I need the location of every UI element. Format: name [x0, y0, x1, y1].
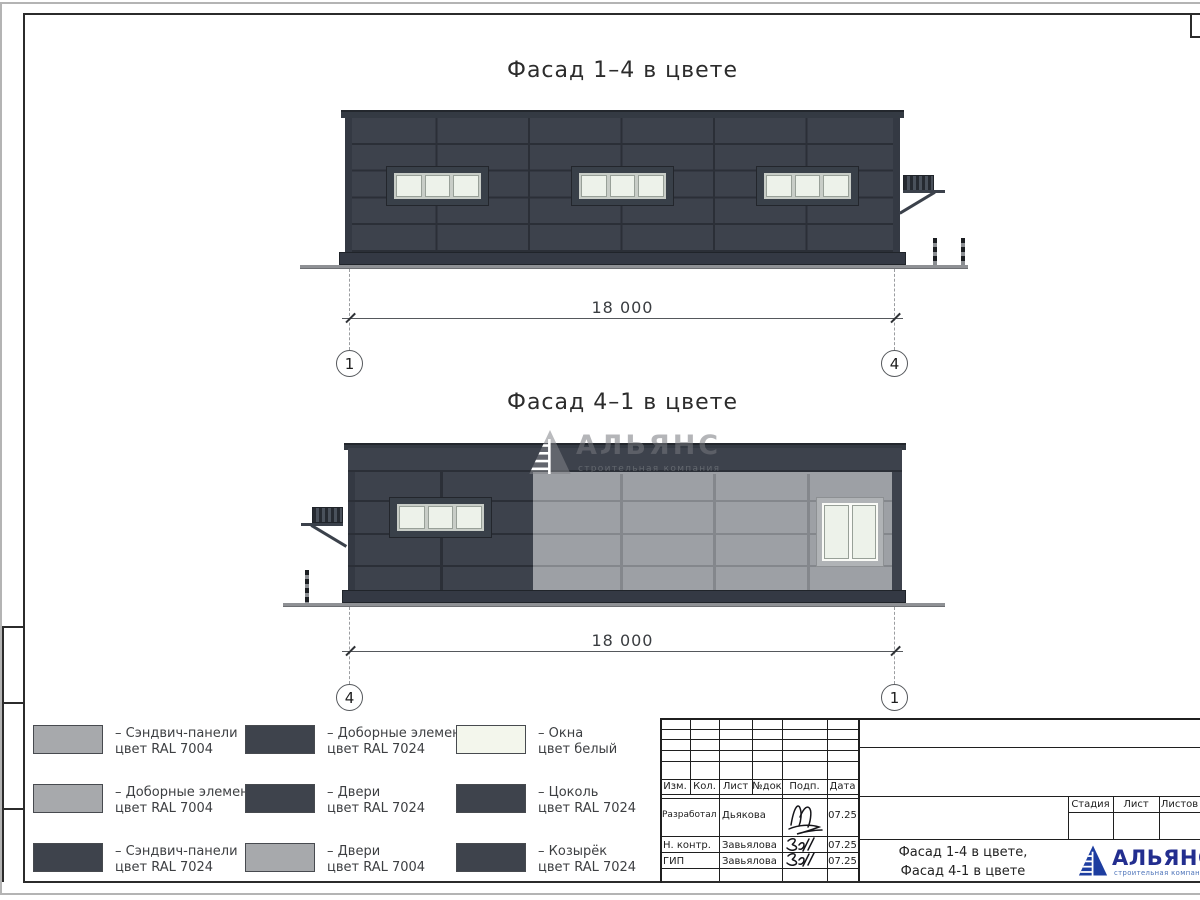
legend-label-line: – Окна — [538, 726, 617, 742]
facade2-window-right — [816, 497, 884, 567]
legend-label-line: – Цоколь — [538, 785, 636, 801]
col-header-kol: Кол. — [690, 781, 719, 792]
signature — [785, 852, 827, 867]
left-margin-stamp — [2, 702, 24, 704]
drawing-frame-top — [23, 13, 1200, 15]
window-pane — [456, 506, 482, 529]
facade1-ground-line — [300, 265, 968, 269]
watermark-logo — [528, 428, 572, 480]
legend-label: – Сэндвич-панели цвет RAL 7024 — [115, 844, 238, 876]
titleblock-border — [660, 718, 1200, 720]
panel-seam — [620, 474, 623, 590]
col-header-list: Лист — [719, 781, 752, 792]
axis-number: 4 — [890, 355, 900, 373]
company-logo-text: АЛЬЯНС — [1112, 846, 1200, 870]
legend-label-line: цвет RAL 7024 — [327, 801, 425, 817]
legend-swatch — [33, 725, 103, 754]
facade2-title: Фасад 4–1 в цвете — [345, 390, 900, 415]
facade2-plinth — [342, 590, 906, 603]
paper-top-edge — [0, 2, 1200, 4]
sign-date: 07.25 — [827, 856, 858, 867]
facade1-plinth — [339, 252, 906, 265]
legend-label: – Доборные элементы цвет RAL 7004 — [115, 785, 266, 817]
titleblock-border — [660, 718, 662, 883]
legend-label: – Цоколь цвет RAL 7024 — [538, 785, 636, 817]
facade1-canopy-strut — [899, 191, 935, 214]
facade2-corner-trim-left — [348, 472, 355, 590]
facade2-dimension-label: 18 000 — [350, 631, 895, 650]
axis-number: 1 — [890, 689, 900, 707]
titleblock-divider — [782, 718, 783, 881]
watermark-tagline: строительная компания — [578, 464, 720, 474]
signature — [785, 837, 827, 852]
signer-role: Н. контр. — [663, 840, 719, 851]
facade2-axis-bubble-left: 4 — [336, 684, 363, 711]
document-title-line: Фасад 1-4 в цвете, — [860, 843, 1066, 862]
legend-label-line: – Козырёк — [538, 844, 636, 860]
facade1-dimension-line — [342, 318, 903, 319]
facade1-window-1 — [386, 166, 489, 206]
panel-seam — [713, 474, 716, 590]
panel-seam — [807, 474, 810, 590]
stage-header: Стадия — [1068, 799, 1113, 810]
window-pane — [766, 175, 792, 197]
facade2-corner-trim-right — [892, 472, 902, 590]
facade1-parapet-coping — [341, 110, 904, 118]
facade2-canopy — [312, 507, 343, 523]
legend-label-line: цвет RAL 7024 — [115, 860, 238, 876]
legend-label-line: цвет RAL 7004 — [327, 860, 425, 876]
col-header-data: Дата — [827, 781, 858, 792]
facade2-window-left — [389, 497, 492, 538]
titleblock-divider — [858, 839, 1200, 840]
company-logo-pyramid-icon — [1078, 844, 1108, 877]
legend-swatch — [456, 725, 526, 754]
titleblock-divider — [858, 747, 1200, 748]
titleblock-divider — [1068, 812, 1200, 813]
drawing-frame-left — [23, 13, 25, 883]
legend-label-line: цвет RAL 7004 — [115, 742, 238, 758]
legend-label: – Двери цвет RAL 7024 — [327, 785, 425, 817]
legend-label-line: – Двери — [327, 844, 425, 860]
legend-swatch — [456, 784, 526, 813]
legend-label: – Сэндвич-панели цвет RAL 7004 — [115, 726, 238, 758]
window-pane — [823, 175, 849, 197]
facade2-axis-bubble-right: 1 — [881, 684, 908, 711]
sheet-header: Лист — [1113, 799, 1159, 810]
titleblock-divider — [660, 836, 858, 837]
legend-swatch — [245, 725, 315, 754]
facade2-canopy-strut — [311, 524, 347, 547]
legend-swatch — [456, 843, 526, 872]
window-pane — [610, 175, 636, 197]
drawing-frame-bottom — [23, 881, 1200, 883]
window-pane — [453, 175, 479, 197]
panel-seam — [348, 565, 533, 567]
facade2-ground-line — [283, 603, 945, 607]
window-pane — [396, 175, 422, 197]
axis-number: 4 — [345, 689, 355, 707]
signature — [786, 799, 826, 835]
col-header-ndok: №док — [752, 781, 782, 792]
facade1-window-2 — [571, 166, 674, 206]
facade1-canopy — [903, 175, 934, 191]
legend-label-line: – Доборные элементы — [115, 785, 266, 801]
signer-role: Разработал — [662, 810, 719, 820]
titleblock-divider — [719, 718, 720, 881]
titleblock-divider — [660, 852, 858, 853]
left-margin-stamp — [2, 626, 24, 628]
legend-label-line: цвет RAL 7004 — [115, 801, 266, 817]
signer-role: ГИП — [663, 856, 719, 867]
facade1-axis-bubble-left: 1 — [336, 350, 363, 377]
legend-label-line: цвет белый — [538, 742, 617, 758]
watermark-pyramid-icon — [528, 428, 572, 476]
legend-swatch — [33, 843, 103, 872]
col-header-izm: Изм. — [660, 781, 690, 792]
window-pane — [425, 175, 451, 197]
window-pane — [795, 175, 821, 197]
titleblock-divider — [660, 798, 858, 799]
watermark-text: АЛЬЯНС — [576, 430, 721, 461]
facade1-dimension-label: 18 000 — [350, 298, 895, 317]
legend-label-line: – Двери — [327, 785, 425, 801]
legend-label-line: – Сэндвич-панели — [115, 726, 238, 742]
signer-name: Дьякова — [722, 810, 781, 821]
window-pane — [581, 175, 607, 197]
sign-date: 07.25 — [827, 810, 858, 821]
facade1-corner-trim-right — [893, 118, 900, 252]
facade1-post — [961, 238, 965, 266]
titleblock-divider — [660, 794, 858, 795]
corner-stamp-box — [1190, 15, 1192, 37]
document-title: Фасад 1-4 в цвете, Фасад 4-1 в цвете — [860, 843, 1066, 881]
legend-swatch — [245, 784, 315, 813]
window-frame — [579, 173, 666, 199]
sign-date: 07.25 — [827, 840, 858, 851]
window-frame — [394, 173, 481, 199]
window-pane — [824, 505, 849, 559]
titleblock-divider — [660, 739, 858, 740]
legend-label: – Козырёк цвет RAL 7024 — [538, 844, 636, 876]
window-pane — [428, 506, 454, 529]
axis-number: 1 — [345, 355, 355, 373]
legend-label-line: цвет RAL 7024 — [538, 860, 636, 876]
titleblock-divider — [858, 796, 1200, 797]
window-pane — [638, 175, 664, 197]
window-frame — [822, 503, 878, 561]
facade1-window-3 — [756, 166, 859, 206]
facade2-dimension-line — [342, 651, 903, 652]
col-header-podp: Подп. — [782, 781, 827, 792]
document-title-line: Фасад 4-1 в цвете — [860, 862, 1066, 881]
facade1-title: Фасад 1–4 в цвете — [345, 58, 900, 83]
legend-swatch — [245, 843, 315, 872]
legend-swatch — [33, 784, 103, 813]
window-frame — [397, 504, 484, 531]
corner-stamp-box — [1190, 36, 1200, 38]
facade1-canopy-ledge — [903, 190, 945, 193]
company-logo-tagline: строительная компания — [1114, 869, 1200, 877]
window-pane — [852, 505, 877, 559]
facade1-post — [933, 238, 937, 266]
window-frame — [764, 173, 851, 199]
titleblock-divider — [660, 868, 858, 869]
facade1-axis-bubble-right: 4 — [881, 350, 908, 377]
legend-label-line: цвет RAL 7024 — [538, 801, 636, 817]
titleblock-divider — [660, 761, 858, 762]
facade1-corner-trim-left — [345, 118, 352, 252]
titleblock-divider — [660, 779, 858, 780]
left-margin-stamp — [2, 626, 4, 882]
legend-label: – Окна цвет белый — [538, 726, 617, 758]
facade2-canopy-ledge — [301, 523, 343, 526]
legend-label-line: – Сэндвич-панели — [115, 844, 238, 860]
window-pane — [399, 506, 425, 529]
signer-name: Завьялова — [722, 856, 781, 867]
titleblock-divider — [660, 750, 858, 751]
titleblock-divider — [660, 729, 858, 730]
sheets-header: Листов — [1159, 799, 1200, 810]
facade2-post — [305, 570, 309, 603]
signer-name: Завьялова — [722, 840, 781, 851]
legend-label: – Двери цвет RAL 7004 — [327, 844, 425, 876]
paper-bottom-edge — [0, 893, 1200, 895]
left-margin-stamp — [2, 808, 24, 810]
